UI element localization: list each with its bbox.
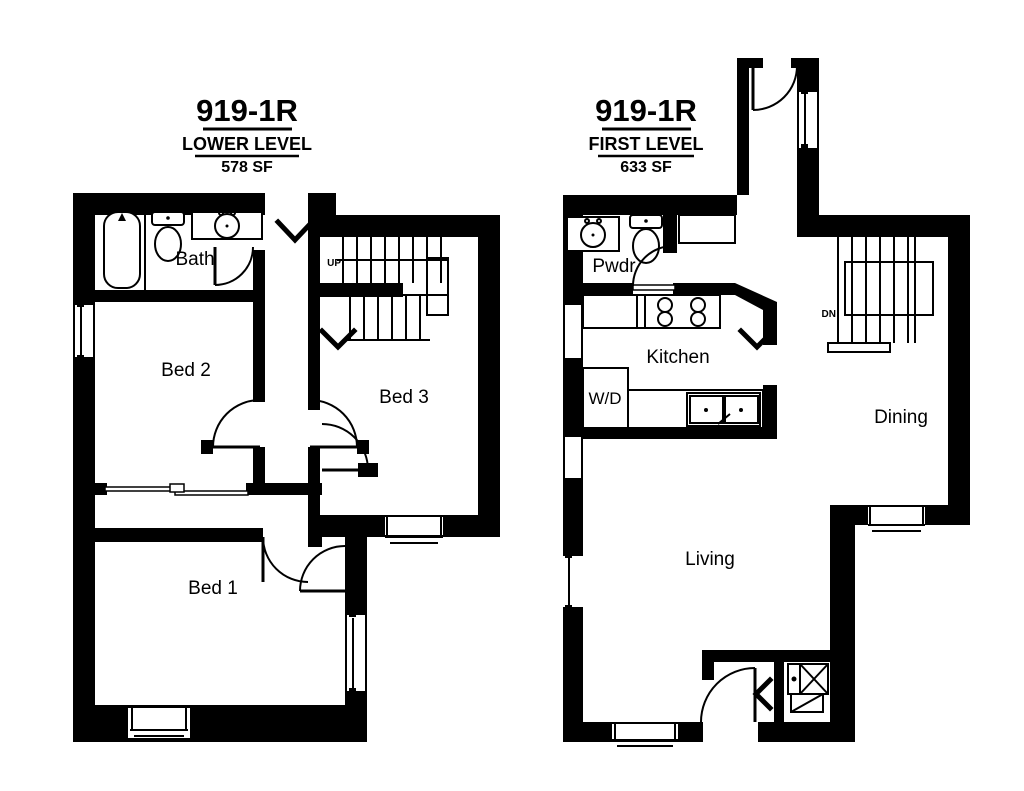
first-unit-title: 919-1R: [595, 93, 697, 128]
wall-segment: [563, 283, 633, 295]
bath-door: [215, 247, 253, 285]
first-level-plan: 919-1R FIRST LEVEL 633 SF: [563, 58, 970, 746]
first-level-title-block: 919-1R FIRST LEVEL 633 SF: [588, 93, 703, 176]
room-label-bed2: Bed 2: [161, 360, 211, 381]
lower-area-label: 578 SF: [221, 159, 273, 176]
wall-segment: [201, 440, 213, 454]
room-label-laundry: W/D: [588, 389, 621, 408]
room-label-bath: Bath: [175, 249, 214, 270]
room-label-pwdr: Pwdr: [592, 256, 636, 277]
kitchen-sink-icon: [687, 393, 760, 426]
wall-segment: [253, 447, 265, 483]
wall-segment: [819, 215, 970, 237]
rear-door-chevron-icon: [756, 680, 770, 708]
lower-unit-title: 919-1R: [196, 93, 298, 128]
bed1-bottom-window: [128, 708, 190, 738]
bed1-door: [263, 537, 308, 582]
floor-plan-drawing: 919-1R LOWER LEVEL 578 SF: [0, 0, 1024, 791]
wall-segment: [737, 62, 749, 195]
wall-segment: [702, 650, 833, 662]
living-upper-side-window: [565, 437, 581, 478]
hall-opening-chevron-icon: [278, 222, 312, 240]
lower-level-label: LOWER LEVEL: [182, 134, 312, 154]
wall-segment: [774, 662, 784, 724]
wall-segment: [246, 483, 322, 495]
stairs-up-label: UP: [327, 258, 341, 269]
wall-segment: [73, 193, 95, 742]
first-level-label: FIRST LEVEL: [588, 134, 703, 154]
stair-treads-lower: [345, 295, 448, 340]
utility-closet: [788, 664, 828, 712]
kitchen-side-window: [565, 305, 581, 358]
wall-segment: [948, 215, 970, 525]
wall-segment: [253, 250, 265, 402]
wall-segment: [830, 505, 855, 742]
wall-segment: [95, 528, 263, 542]
stove-icon: [645, 295, 720, 328]
bed2-door: [213, 400, 260, 447]
stairs-dn-label: DN: [822, 309, 836, 320]
room-label-dining: Dining: [874, 407, 928, 428]
bed3-window: [385, 517, 443, 543]
first-area-label: 633 SF: [620, 159, 672, 176]
wall-segment: [308, 515, 322, 547]
room-label-bed1: Bed 1: [188, 578, 238, 599]
wall-segment: [702, 650, 714, 680]
wall-segment: [797, 62, 819, 237]
living-side-window: [563, 554, 583, 609]
stair-rail: [845, 262, 933, 315]
bed3-opening-chevron-icon: [322, 331, 354, 347]
first-stairs: DN: [822, 237, 933, 352]
stair-treads: [838, 237, 915, 343]
bathroom-sink-icon: [192, 211, 262, 239]
bed1-side-window: [347, 613, 365, 692]
entry-window: [799, 90, 817, 148]
wall-segment: [563, 195, 737, 215]
floor-plan-canvas: 919-1R LOWER LEVEL 578 SF: [0, 0, 1024, 791]
water-heater-icon: [788, 664, 828, 694]
powder-sink-icon: [567, 217, 619, 251]
wall-segment: [673, 283, 735, 295]
wall-segment: [73, 705, 345, 742]
wall-segment: [758, 722, 855, 742]
bathtub-icon: [104, 212, 140, 288]
lower-level-title-block: 919-1R LOWER LEVEL 578 SF: [182, 93, 312, 176]
entry-door: [753, 66, 797, 110]
room-label-living: Living: [685, 549, 735, 570]
living-bottom-window: [612, 724, 678, 746]
wall-segment: [95, 290, 265, 302]
entry-niche: [679, 215, 735, 243]
utility-shelf-icon: [791, 694, 823, 712]
wall-segment: [330, 215, 500, 237]
bed1-nook-door: [300, 546, 345, 591]
wall-segment: [308, 447, 320, 515]
room-label-kitchen: Kitchen: [646, 347, 709, 368]
bed2-window: [75, 303, 93, 359]
dining-window: [868, 507, 925, 531]
stair-entry-step: [828, 343, 890, 352]
room-label-bed3: Bed 3: [379, 387, 429, 408]
lower-level-plan: 919-1R LOWER LEVEL 578 SF: [73, 93, 500, 742]
closet-sliding-doors: [105, 484, 248, 495]
wall-segment: [478, 215, 500, 537]
stair-rail: [427, 258, 448, 315]
